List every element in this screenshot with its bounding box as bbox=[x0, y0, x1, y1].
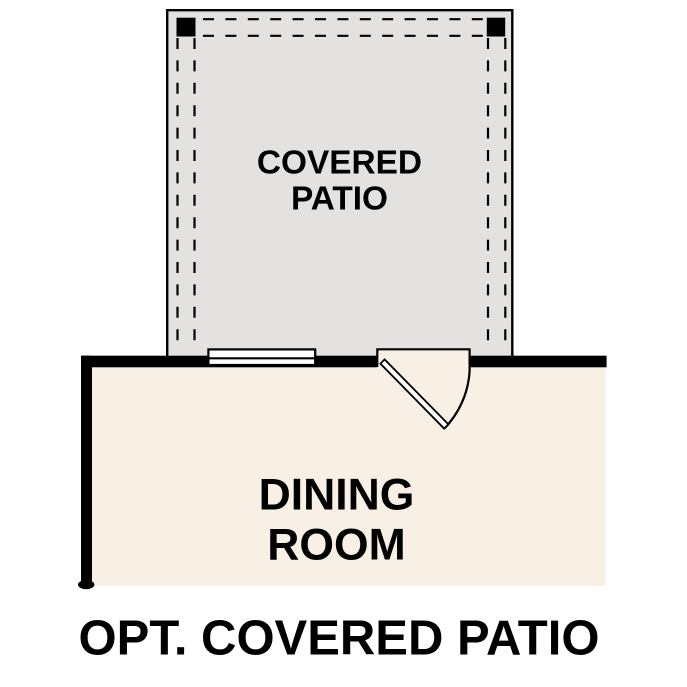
svg-text:ROOM: ROOM bbox=[267, 521, 405, 570]
svg-text:OPT. COVERED PATIO: OPT. COVERED PATIO bbox=[79, 612, 600, 666]
svg-text:DINING: DINING bbox=[259, 470, 415, 519]
svg-text:PATIO: PATIO bbox=[291, 181, 388, 218]
svg-text:COVERED: COVERED bbox=[257, 145, 422, 182]
